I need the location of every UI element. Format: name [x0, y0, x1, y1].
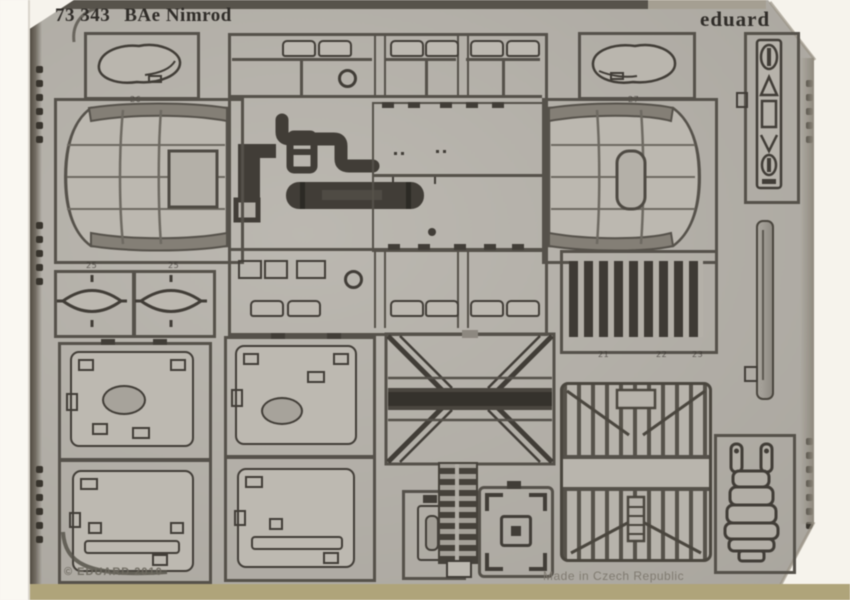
- part-seat-frame: [714, 434, 796, 574]
- etch-mark: [66, 393, 78, 411]
- panel-hole: [500, 515, 532, 547]
- small-plate-part: [264, 260, 288, 279]
- part-floor-panel: [372, 102, 548, 252]
- etch-mark: [428, 228, 436, 236]
- small-clip-part: [470, 300, 504, 317]
- etch-mark: [443, 150, 446, 153]
- etch-mark: [434, 177, 436, 184]
- window-opening: [261, 397, 303, 425]
- part-number-label: 21: [598, 350, 609, 359]
- etch-mark: [408, 102, 420, 108]
- small-clip-part: [506, 40, 540, 57]
- part-ribbed-panel: [560, 382, 712, 562]
- part-door-window-left-frame: [58, 342, 212, 462]
- etch-mark: [327, 333, 341, 339]
- etch-mark: [394, 152, 397, 155]
- panel-divider: [374, 36, 386, 95]
- part-seat: [717, 437, 787, 565]
- etch-mark: [307, 371, 325, 383]
- part-number-label: 23: [692, 350, 703, 359]
- part-blade-strip: [756, 220, 774, 400]
- etch-mark: [80, 478, 98, 490]
- part-louver-grille: [569, 261, 703, 337]
- part-instrument-strip-frame: [744, 32, 800, 204]
- etch-mark: [392, 177, 394, 184]
- small-clip-part: [390, 300, 424, 317]
- part-door-window-right-frame: [224, 336, 376, 458]
- etch-mark: [512, 244, 524, 250]
- etch-mark: [132, 427, 150, 439]
- part-fairing-left: [87, 35, 191, 91]
- part-louver-grille-frame: [560, 250, 718, 354]
- etch-mark: [484, 244, 496, 250]
- photo-etch-fret-photo: 26 27: [0, 0, 850, 600]
- part-fairing-right: [581, 35, 687, 91]
- small-clip-part: [287, 300, 321, 317]
- small-plate-part: [296, 260, 326, 279]
- etch-mark: [300, 58, 303, 95]
- copyright-text: © EDUARD 2010: [64, 566, 163, 578]
- part-ladder-strip: [438, 462, 478, 564]
- ring-part: [344, 270, 363, 289]
- panel-divider: [374, 250, 386, 328]
- part-oval-left-frame: [54, 270, 136, 338]
- photo-left-margin: [0, 0, 30, 600]
- etch-mark: [78, 359, 94, 371]
- part-oval-left: [57, 273, 127, 329]
- small-clip-part: [390, 40, 424, 57]
- etch-mark: [243, 353, 259, 365]
- etch-mark: [245, 476, 263, 488]
- ribbed-panel-flaps: [563, 385, 709, 559]
- etch-mark: [271, 333, 285, 339]
- tooling-holes-left-top: [36, 66, 43, 143]
- part-number-label: 25: [168, 261, 179, 270]
- etch-mark: [455, 464, 459, 562]
- etch-mark: [231, 389, 243, 407]
- etch-mark: [502, 58, 505, 95]
- etch-mark: [382, 102, 394, 108]
- etch-mark: [269, 518, 283, 530]
- part-x-brace: [382, 330, 558, 468]
- etch-mark: [374, 174, 546, 177]
- etch-mark: [69, 512, 81, 528]
- etch-mark: [231, 95, 542, 98]
- etch-mark: [440, 102, 452, 108]
- etch-mark: [744, 366, 758, 382]
- etch-mark: [446, 560, 472, 578]
- part-door-plain-right: [237, 468, 355, 568]
- etch-mark: [251, 536, 343, 550]
- small-clip-part: [250, 300, 284, 317]
- etch-mark: [333, 353, 349, 365]
- etch-mark: [234, 510, 246, 526]
- part-door-window-left: [70, 351, 194, 447]
- part-number-label: 22: [656, 350, 667, 359]
- part-fuselage-panel-right: [545, 101, 709, 253]
- part-instrument-strip: [747, 35, 791, 195]
- made-in-text: Made in Czech Republic: [543, 569, 684, 583]
- etch-mark: [466, 102, 478, 108]
- part-fuselage-panel-left: [57, 101, 235, 253]
- etch-mark: [485, 493, 503, 511]
- part-fuselage-panel-right-frame: [542, 98, 718, 264]
- etch-mark: [511, 526, 521, 536]
- etch-mark: [423, 495, 437, 503]
- etch-mark: [529, 493, 547, 511]
- photo-bottom-strip: [28, 584, 850, 600]
- small-clip-part: [425, 40, 459, 57]
- part-access-panel-frame: [478, 486, 554, 578]
- sheet-right-shadow: [800, 58, 814, 524]
- part-door-plain-right-frame: [224, 456, 376, 582]
- sheet-crease: [55, 528, 175, 588]
- tooling-holes-left-bottom: [36, 466, 43, 543]
- ring-part: [338, 69, 357, 88]
- part-oval-right-frame: [132, 270, 216, 338]
- etch-mark: [425, 515, 439, 551]
- etch-mark: [736, 92, 748, 108]
- etch-mark: [492, 102, 504, 108]
- small-clip-part: [318, 40, 352, 57]
- etch-mark: [401, 152, 404, 155]
- small-clip-part: [425, 300, 459, 317]
- small-plate-part: [238, 260, 262, 279]
- etch-mark: [323, 552, 339, 564]
- part-fairing-left-frame: [84, 32, 200, 100]
- small-clip-part: [282, 40, 316, 57]
- etch-mark: [762, 230, 764, 380]
- small-clip-part: [506, 300, 540, 317]
- part-oval-right: [135, 273, 207, 329]
- etch-mark: [507, 481, 521, 489]
- etch-mark: [92, 423, 108, 435]
- part-door-window-right: [235, 345, 357, 445]
- part-fuselage-panel-left-frame: [54, 98, 244, 264]
- etch-mark: [425, 58, 428, 95]
- tooling-holes-left-mid: [36, 222, 43, 285]
- catalog-number: 73 343: [55, 5, 110, 26]
- etch-mark: [388, 244, 400, 250]
- product-title: 73 343BAe Nimrod: [55, 5, 232, 27]
- brand-logo: eduard: [700, 7, 770, 32]
- etch-mark: [485, 553, 503, 571]
- etch-mark: [436, 150, 439, 153]
- etch-mark: [101, 339, 115, 345]
- product-name: BAe Nimrod: [124, 5, 232, 26]
- panel-divider: [457, 250, 469, 328]
- etch-mark: [153, 339, 167, 345]
- etch-mark: [170, 359, 186, 371]
- part-number-label: 25: [86, 261, 97, 270]
- small-clip-part: [470, 40, 504, 57]
- part-fairing-right-frame: [578, 32, 696, 100]
- etch-mark: [454, 244, 466, 250]
- etch-mark: [384, 58, 456, 61]
- etch-mark: [418, 244, 430, 250]
- window-opening: [102, 385, 146, 415]
